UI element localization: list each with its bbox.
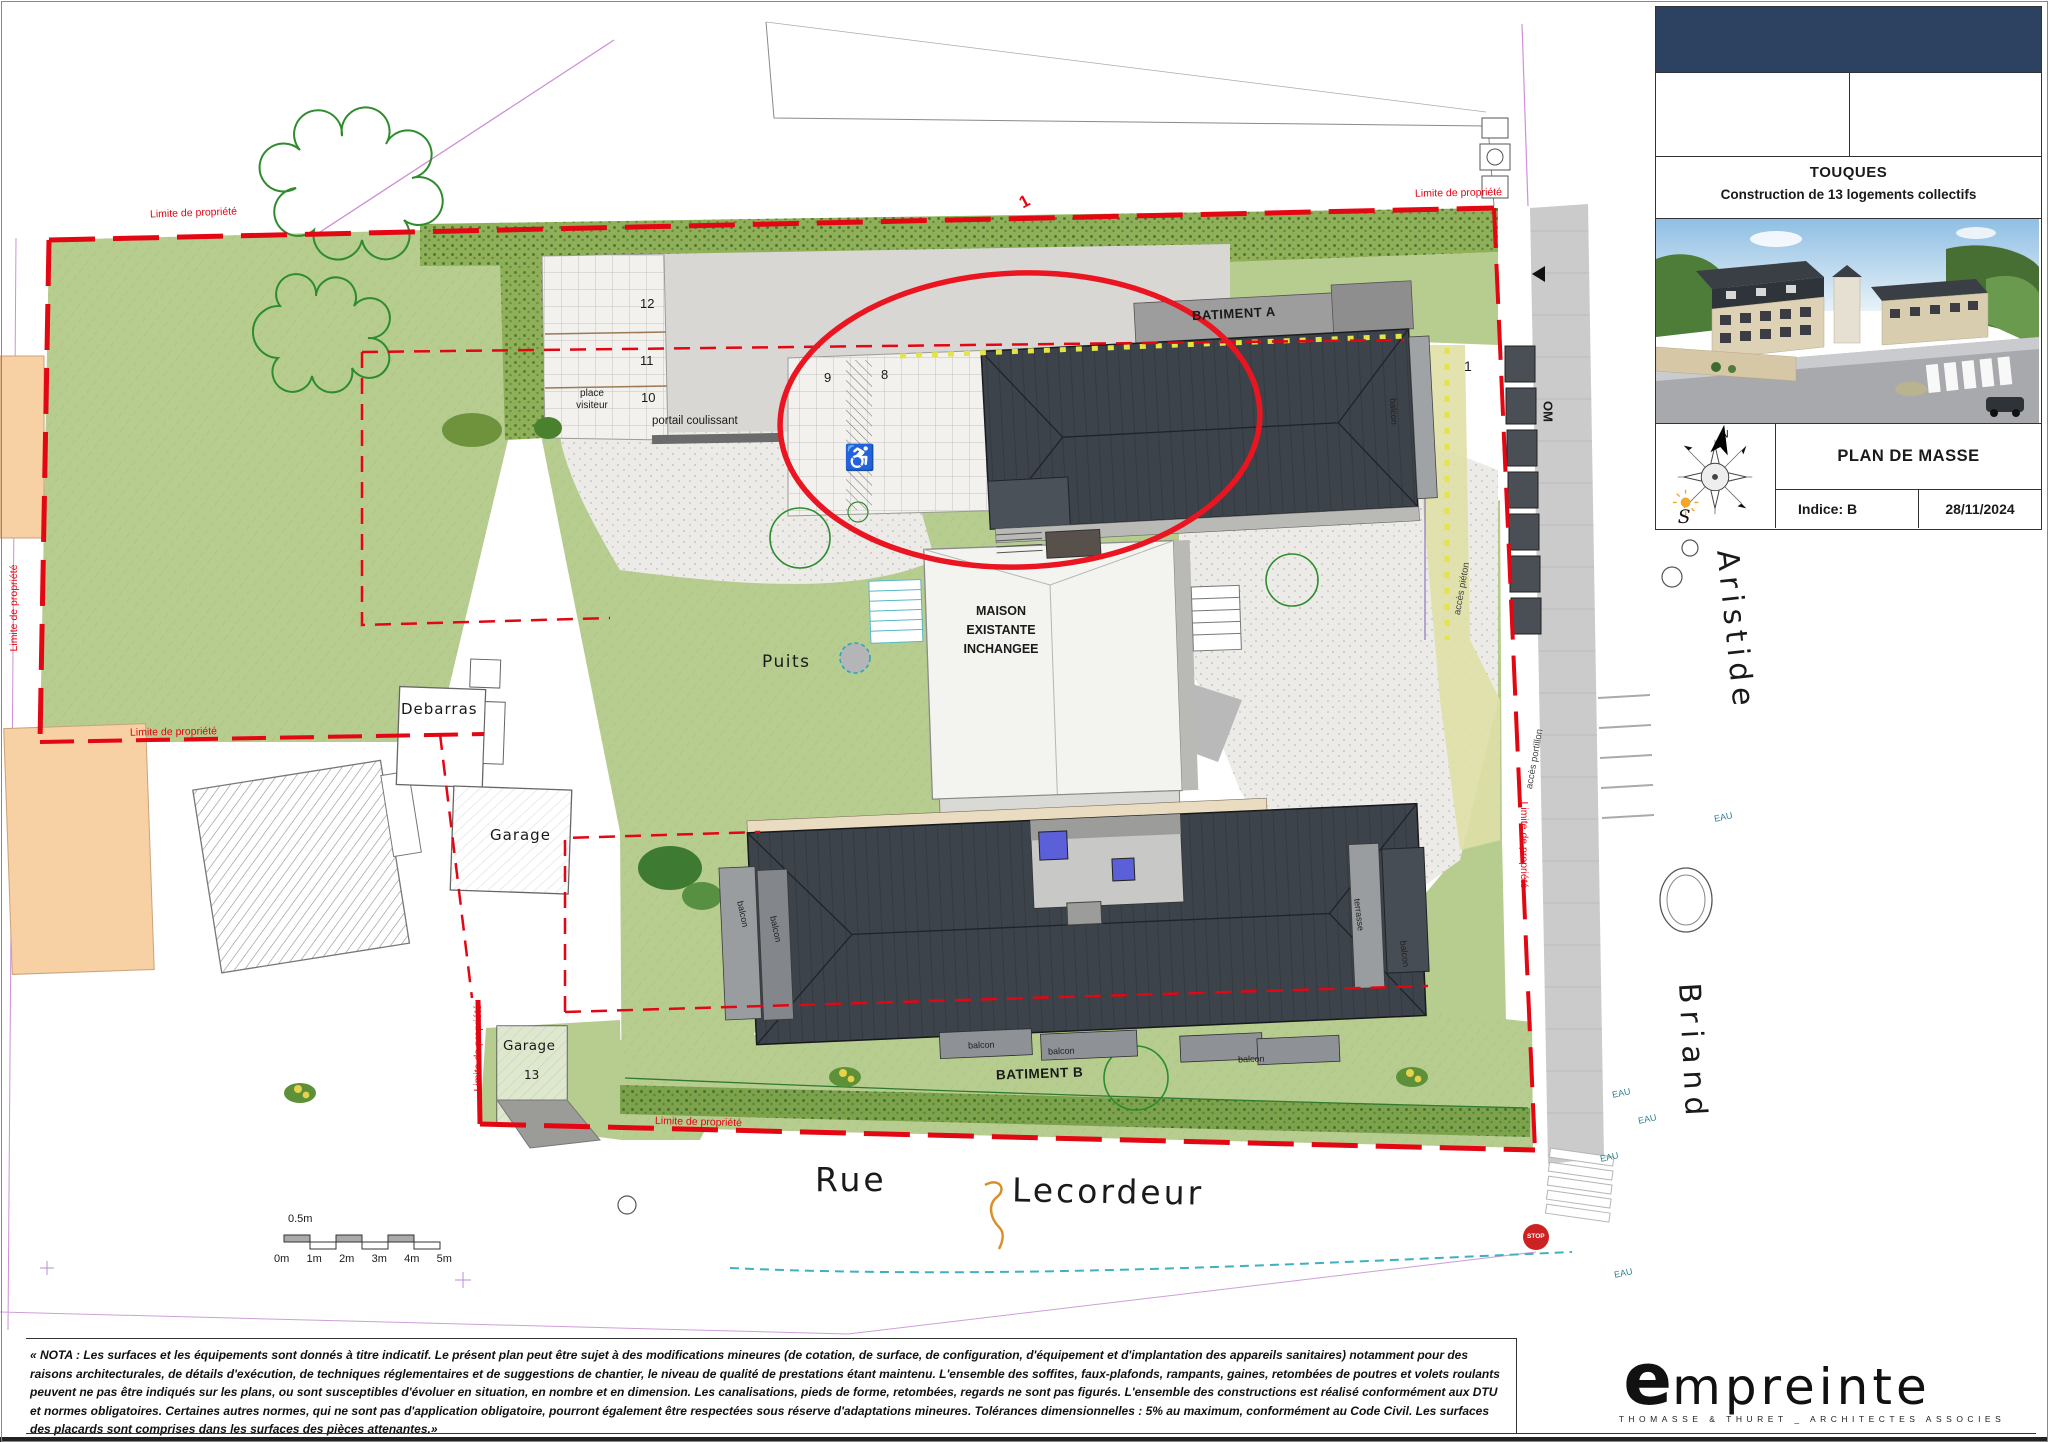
scale-tick-4: 4m	[404, 1253, 419, 1265]
limite-label-top-right: Limite de propriété	[1415, 186, 1502, 200]
street-lecordeur: Lecordeur	[1012, 1170, 1205, 1212]
balcon-label-a: balcon	[1388, 398, 1399, 425]
limite-label-bottom: Limite de propriété	[655, 1115, 742, 1129]
puits-label: Puits	[762, 652, 810, 672]
debarras-label: Debarras	[401, 700, 478, 718]
scale-bar: 0.5m 0m 1m 2m 3m 4m 5m	[278, 1213, 448, 1265]
street-briand: Briand	[1671, 982, 1713, 1123]
portail-coulissant-label: portail coulissant	[652, 415, 738, 427]
maison-line-2: EXISTANTE	[945, 621, 1057, 640]
handicap-icon: ♿	[844, 444, 875, 473]
title-block-header-bar	[1656, 7, 2041, 72]
maison-line-1: MAISON	[945, 602, 1057, 621]
compass-south-label: S	[1678, 507, 1691, 526]
parking-8: 8	[881, 367, 888, 382]
balcon-label-s2: balcon	[1048, 1046, 1075, 1057]
logo-letter-e: e	[1623, 1337, 1672, 1421]
title-block-empty-cells	[1656, 72, 2041, 157]
compass-rose: N S	[1656, 424, 1774, 526]
parking-9: 9	[824, 370, 831, 385]
indice-cell: Indice: B	[1776, 490, 1919, 528]
limite-label-left: Limite de propriété	[8, 558, 20, 658]
plan-de-masse-sheet: Limite de propriété Limite de propriété …	[0, 0, 2048, 1442]
title-block-project: TOUQUES Construction de 13 logements col…	[1656, 157, 2041, 219]
puits-well	[840, 643, 870, 673]
project-render-image	[1656, 219, 2041, 423]
parking-11: 11	[640, 353, 654, 368]
scale-half-label: 0.5m	[288, 1213, 312, 1225]
limite-label-garage: Limite de propriété	[472, 998, 484, 1098]
garage-label: Garage	[490, 826, 551, 844]
scale-tick-3: 3m	[372, 1253, 387, 1265]
architect-logo: empreinte	[1623, 1347, 1930, 1412]
street-rue: Rue	[815, 1160, 887, 1199]
batiment-b-label: BATIMENT B	[996, 1064, 1084, 1082]
place-visiteur-line1: place	[566, 388, 618, 400]
logo-name-rest: mpreinte	[1672, 1358, 1931, 1416]
stop-label: STOP	[1527, 1233, 1545, 1240]
architect-logo-box: empreinte THOMASSE & THURET _ ARCHITECTE…	[1516, 1338, 2037, 1433]
scale-bar-graphic	[278, 1233, 448, 1253]
bottom-strip-bottom-line	[26, 1433, 2036, 1434]
limite-label-mid-left: Limite de propriété	[130, 725, 217, 739]
limite-label-right: Limite de propriété	[1518, 795, 1530, 895]
parking-10: 10	[641, 390, 655, 405]
date-cell: 28/11/2024	[1919, 490, 2041, 528]
title-block: TOUQUES Construction de 13 logements col…	[1655, 6, 2042, 530]
scale-tick-5: 5m	[437, 1253, 452, 1265]
project-description: Construction de 13 logements collectifs	[1656, 187, 2041, 202]
maison-line-3: INCHANGEE	[945, 640, 1057, 659]
maison-existante-label: MAISON EXISTANTE INCHANGEE	[945, 602, 1057, 658]
title-block-bottom: N S PLAN DE MASSE Indice: B 28/11/2024	[1656, 423, 2041, 527]
place-visiteur-line2: visiteur	[566, 400, 618, 412]
balcon-label-s1: balcon	[968, 1040, 995, 1051]
project-city: TOUQUES	[1656, 164, 2041, 181]
architect-tagline: THOMASSE & THURET _ ARCHITECTES ASSOCIES	[1549, 1414, 2006, 1424]
scale-tick-1: 1m	[307, 1253, 322, 1265]
place-visiteur-label: place visiteur	[566, 388, 618, 411]
page-bottom-rule	[0, 1437, 2048, 1442]
compass-north-label: N	[1721, 429, 1729, 441]
balcon-label-s3: balcon	[1238, 1054, 1265, 1065]
scale-tick-0: 0m	[274, 1253, 289, 1265]
drawing-title: PLAN DE MASSE	[1776, 424, 2041, 490]
storage-boxes	[1505, 346, 1541, 634]
parking-12: 12	[640, 296, 654, 311]
compass-cell: N S	[1656, 424, 1776, 528]
nota-text: « NOTA : Les surfaces et les équipements…	[30, 1346, 1500, 1430]
om-label: OM	[1541, 387, 1556, 437]
parking-1: 1	[1464, 358, 1472, 374]
scale-tick-2: 2m	[339, 1253, 354, 1265]
garage13-number: 13	[524, 1068, 539, 1082]
garage13-label: Garage	[503, 1038, 555, 1054]
